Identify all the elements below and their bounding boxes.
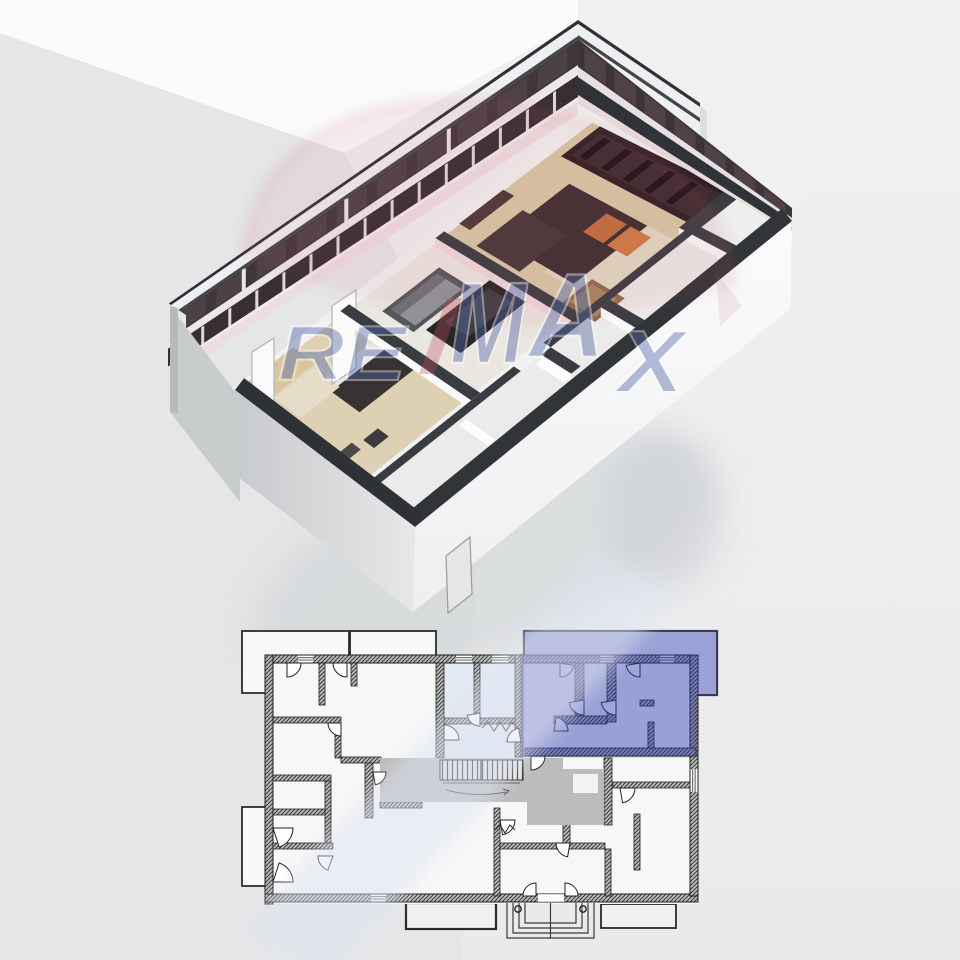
svg-text:M: M [450,258,528,388]
svg-text:RE: RE [278,309,408,397]
svg-text:A: A [526,249,605,383]
svg-text:X: X [612,312,690,411]
